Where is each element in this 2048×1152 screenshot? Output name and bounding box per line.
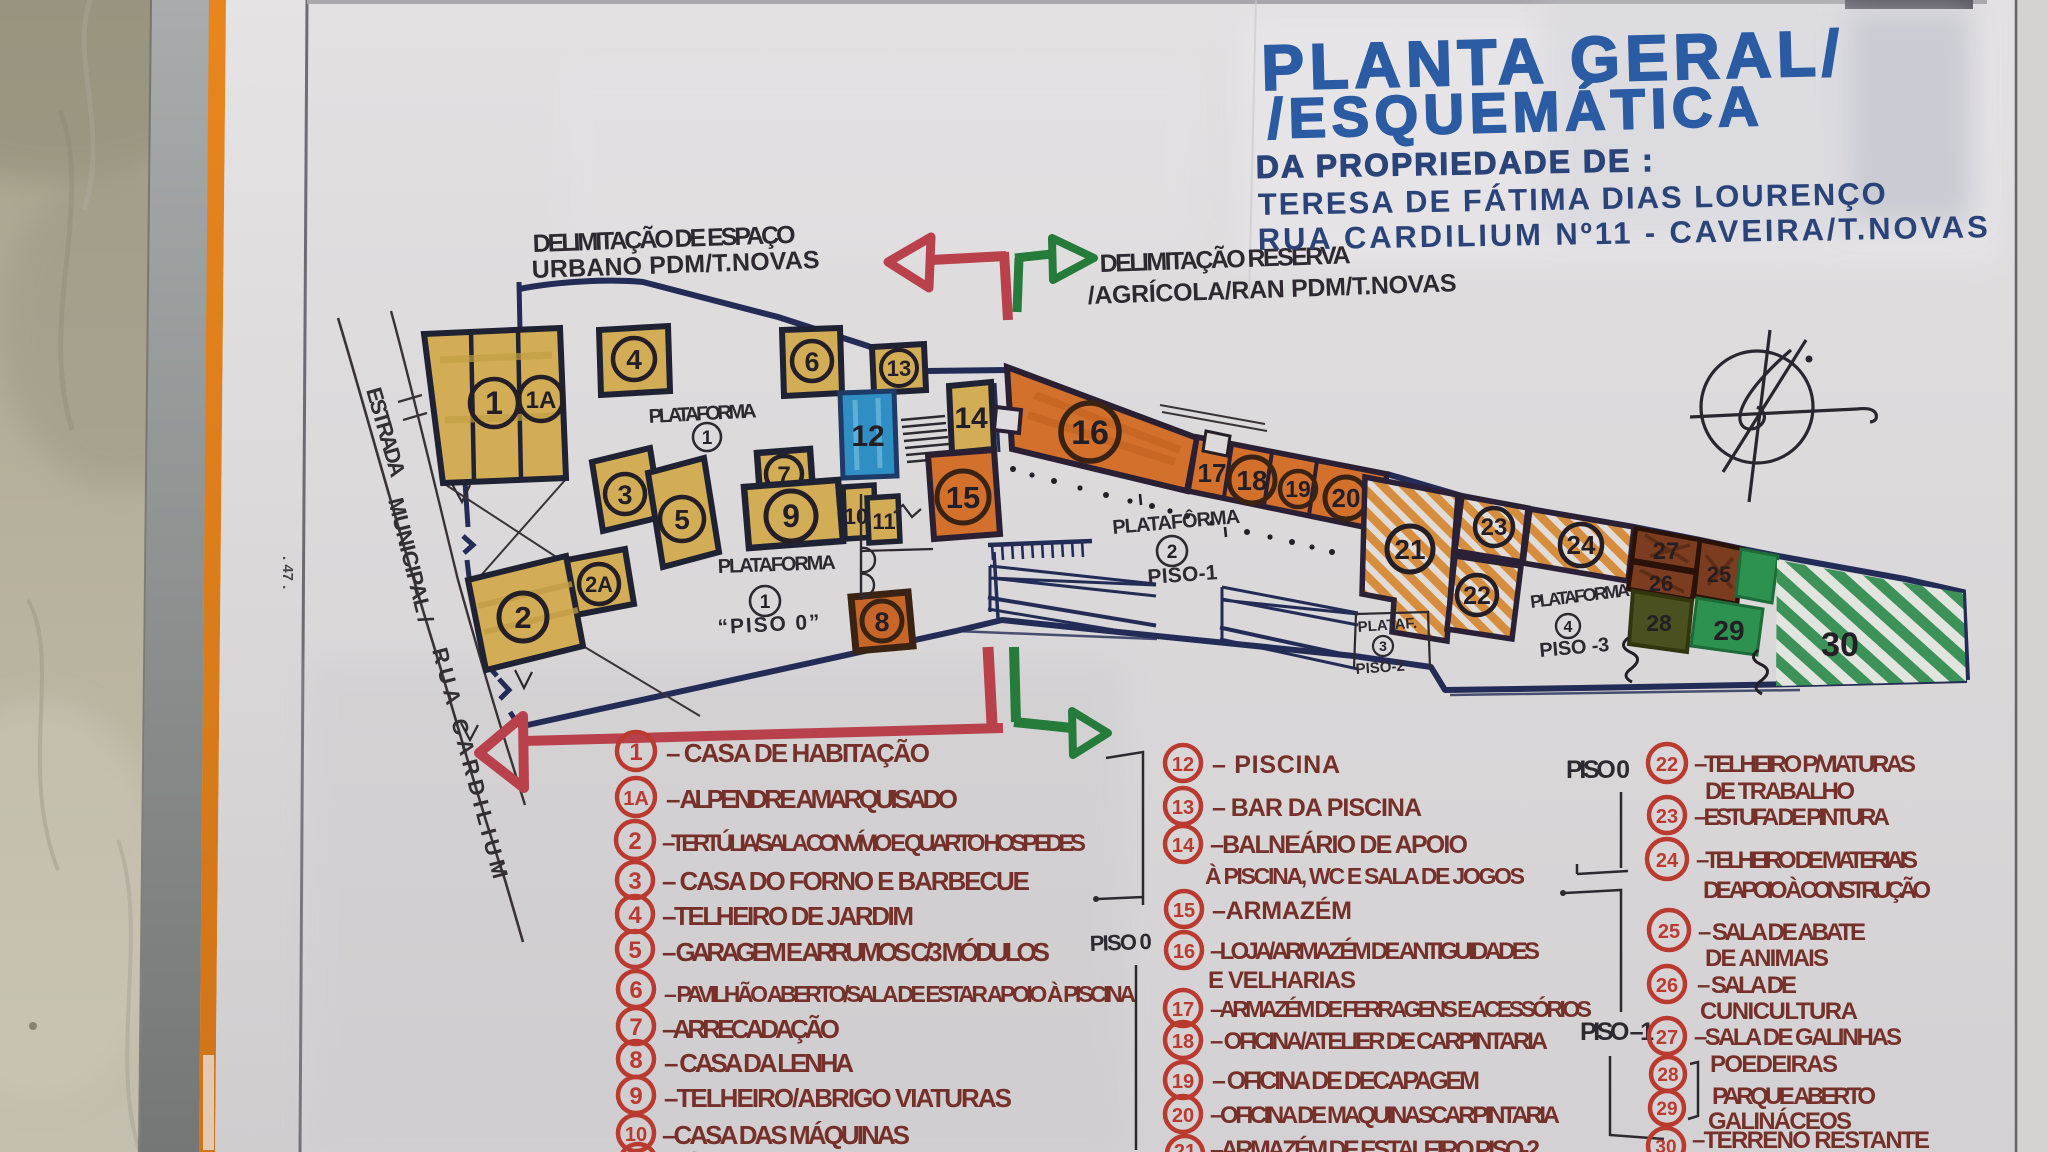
svg-text:PISO 0: PISO 0 [1089, 929, 1152, 956]
svg-text:4: 4 [1564, 619, 1573, 636]
svg-text:19: 19 [1285, 476, 1311, 502]
svg-text:– CASA DA LENHA: – CASA DA LENHA [664, 1048, 854, 1078]
svg-text:6: 6 [804, 347, 819, 377]
svg-text:12: 12 [1172, 754, 1194, 776]
svg-text:3: 3 [1379, 638, 1387, 654]
svg-text:21: 21 [1174, 1141, 1196, 1152]
svg-text:27: 27 [1656, 1027, 1678, 1049]
svg-text:–TERTÚLIA/SALA CONVÍVIO E QUAR: –TERTÚLIA/SALA CONVÍVIO E QUARTO HOSPEDE… [662, 829, 1086, 857]
svg-text:PISO 0: PISO 0 [1566, 756, 1630, 784]
svg-text:DE ANIMAIS: DE ANIMAIS [1705, 945, 1829, 972]
svg-text:13: 13 [887, 356, 911, 381]
svg-text:–BALNEÁRIO DE APOIO: –BALNEÁRIO DE APOIO [1210, 830, 1468, 859]
svg-text:30: 30 [1655, 1137, 1676, 1152]
svg-text:– CASA DE HABITAÇÃO: – CASA DE HABITAÇÃO [666, 738, 930, 768]
svg-text:22: 22 [1656, 754, 1678, 776]
svg-text:8: 8 [874, 607, 889, 637]
svg-text:–SALA DE GALINHAS: –SALA DE GALINHAS [1694, 1024, 1902, 1051]
svg-text:–ARMAZÉM: –ARMAZÉM [1212, 896, 1352, 925]
svg-text:3: 3 [617, 480, 632, 510]
svg-text:E VELHARIAS: E VELHARIAS [1208, 967, 1356, 994]
svg-text:15: 15 [1173, 900, 1195, 922]
svg-text:8: 8 [629, 1047, 642, 1074]
svg-text:9: 9 [782, 498, 800, 534]
svg-text:–TELHEIRO P/VIATURAS: –TELHEIRO P/VIATURAS [1694, 751, 1916, 778]
svg-text:30: 30 [1821, 626, 1859, 664]
svg-text:2A: 2A [585, 572, 613, 597]
svg-text:28: 28 [1646, 610, 1672, 636]
svg-text:16: 16 [1173, 941, 1195, 963]
svg-text:3: 3 [628, 868, 641, 895]
svg-text:–TELHEIRO/ABRIGO VIATURAS: –TELHEIRO/ABRIGO VIATURAS [664, 1083, 1012, 1113]
svg-text:1: 1 [702, 428, 713, 449]
svg-text:1: 1 [485, 385, 503, 421]
svg-text:DA PROPRIEDADE DE :: DA PROPRIEDADE DE : [1255, 142, 1654, 185]
svg-text:– PISCINA: – PISCINA [1212, 751, 1340, 779]
svg-text:2: 2 [514, 600, 531, 635]
svg-text:9: 9 [629, 1083, 642, 1110]
svg-text:– GARAGEM E ARRUMOS C/3 MÓDULO: – GARAGEM E ARRUMOS C/3 MÓDULOS [662, 937, 1050, 967]
svg-text:/ESQUEMÁTICA: /ESQUEMÁTICA [1267, 74, 1760, 150]
svg-text:15: 15 [946, 480, 980, 515]
svg-text:–ARRECADAÇÃO: –ARRECADAÇÃO [662, 1014, 840, 1044]
svg-text:7: 7 [629, 1014, 642, 1041]
svg-text:–TELHEIRO DE MATERIAIS: –TELHEIRO DE MATERIAIS [1696, 847, 1918, 874]
svg-text:À PISCINA, WC E SALA DE JOGOS: À PISCINA, WC E SALA DE JOGOS [1205, 862, 1525, 889]
svg-text:– SALA DE ABATE: – SALA DE ABATE [1698, 919, 1866, 946]
svg-text:5: 5 [674, 504, 690, 535]
svg-text:PLATAFORMA: PLATAFORMA [717, 552, 836, 578]
svg-text:21: 21 [1394, 534, 1425, 565]
svg-text:PISO-1: PISO-1 [1147, 561, 1219, 589]
svg-text:13: 13 [1172, 797, 1194, 819]
svg-text:17: 17 [1198, 458, 1227, 488]
svg-text:16: 16 [1071, 414, 1109, 452]
svg-text:19: 19 [1172, 1071, 1194, 1093]
svg-text:–ARMAZÉM DE FERRAGENS E ACESSÓ: –ARMAZÉM DE FERRAGENS E ACESSÓRIOS [1210, 995, 1592, 1022]
svg-text:29: 29 [1713, 615, 1744, 646]
svg-text:– OFICINA DE DECAPAGEM: – OFICINA DE DECAPAGEM [1212, 1067, 1480, 1095]
svg-text:20: 20 [1332, 483, 1361, 513]
svg-text:2: 2 [628, 828, 641, 855]
svg-text:18: 18 [1236, 465, 1267, 496]
svg-text:–ESTUFA DE PINTURA: –ESTUFA DE PINTURA [1694, 804, 1890, 831]
svg-text:22: 22 [1463, 582, 1491, 610]
svg-text:4: 4 [628, 902, 642, 929]
svg-text:– OFICINA/ATELIER DE CARPINTAR: – OFICINA/ATELIER DE CARPINTARIA [1210, 1028, 1548, 1055]
svg-text:– ALPENDRE AMARQUISADO: – ALPENDRE AMARQUISADO [666, 784, 958, 814]
svg-text:17: 17 [1172, 999, 1194, 1021]
svg-text:– SALA DE: – SALA DE [1697, 972, 1797, 999]
svg-text:–OFICINA DE MAQUINASCARPINTARI: –OFICINA DE MAQUINASCARPINTARIA [1210, 1102, 1560, 1129]
svg-text:25: 25 [1658, 921, 1680, 943]
svg-text:12: 12 [851, 420, 884, 453]
svg-text:5: 5 [628, 937, 641, 964]
svg-text:26: 26 [1656, 975, 1678, 997]
svg-text:2: 2 [1167, 542, 1178, 563]
svg-text:24: 24 [1656, 850, 1679, 872]
svg-text:– SALA: – SALA [664, 1146, 757, 1152]
svg-text:DE APOIO À CONSTRUÇÃO: DE APOIO À CONSTRUÇÃO [1703, 876, 1931, 904]
svg-text:29: 29 [1656, 1099, 1677, 1120]
svg-text:18: 18 [1172, 1031, 1194, 1053]
svg-text:CUNICULTURA: CUNICULTURA [1700, 998, 1858, 1025]
svg-text:14: 14 [1172, 835, 1195, 857]
svg-text:1A: 1A [623, 788, 649, 810]
svg-text:1: 1 [629, 739, 642, 766]
svg-text:1: 1 [760, 592, 771, 613]
svg-text:– CASA DO FORNO E BARBECUE: – CASA DO FORNO E BARBECUE [662, 866, 1030, 896]
svg-text:PISO –1: PISO –1 [1580, 1018, 1654, 1046]
svg-text:–TERRENO RESTANTE: –TERRENO RESTANTE [1692, 1127, 1930, 1152]
svg-text:PARQUE ABERTO: PARQUE ABERTO [1712, 1083, 1876, 1110]
svg-text:–ARMAZÉM DE ESTALEIRO PISO-2: –ARMAZÉM DE ESTALEIRO PISO-2 [1210, 1135, 1540, 1152]
svg-text:– PAVILHÃO ABERTO/SALA DE ESTA: – PAVILHÃO ABERTO/SALA DE ESTAR APOIO À … [664, 980, 1136, 1007]
svg-text:23: 23 [1481, 514, 1508, 541]
svg-text:DE TRABALHO: DE TRABALHO [1705, 778, 1855, 805]
svg-text:–LOJA/ARMAZÉM DE ANTIGUIDADES: –LOJA/ARMAZÉM DE ANTIGUIDADES [1210, 937, 1540, 965]
svg-text:23: 23 [1656, 806, 1678, 828]
svg-text:. 47 .: . 47 . [279, 556, 296, 589]
svg-text:–TELHEIRO DE JARDIM: –TELHEIRO DE JARDIM [662, 901, 914, 931]
svg-text:11: 11 [872, 509, 895, 534]
svg-text:POEDEIRAS: POEDEIRAS [1710, 1051, 1838, 1078]
svg-text:14: 14 [954, 402, 988, 435]
svg-text:– BAR DA PISCINA: – BAR DA PISCINA [1212, 794, 1422, 822]
svg-text:PISO-2: PISO-2 [1355, 658, 1405, 678]
svg-text:6: 6 [629, 977, 642, 1004]
svg-text:20: 20 [1172, 1105, 1194, 1127]
svg-text:1A: 1A [526, 387, 557, 414]
svg-text:28: 28 [1657, 1065, 1678, 1086]
svg-text:10: 10 [844, 504, 868, 529]
svg-text:4: 4 [626, 344, 642, 375]
svg-text:24: 24 [1567, 530, 1596, 560]
